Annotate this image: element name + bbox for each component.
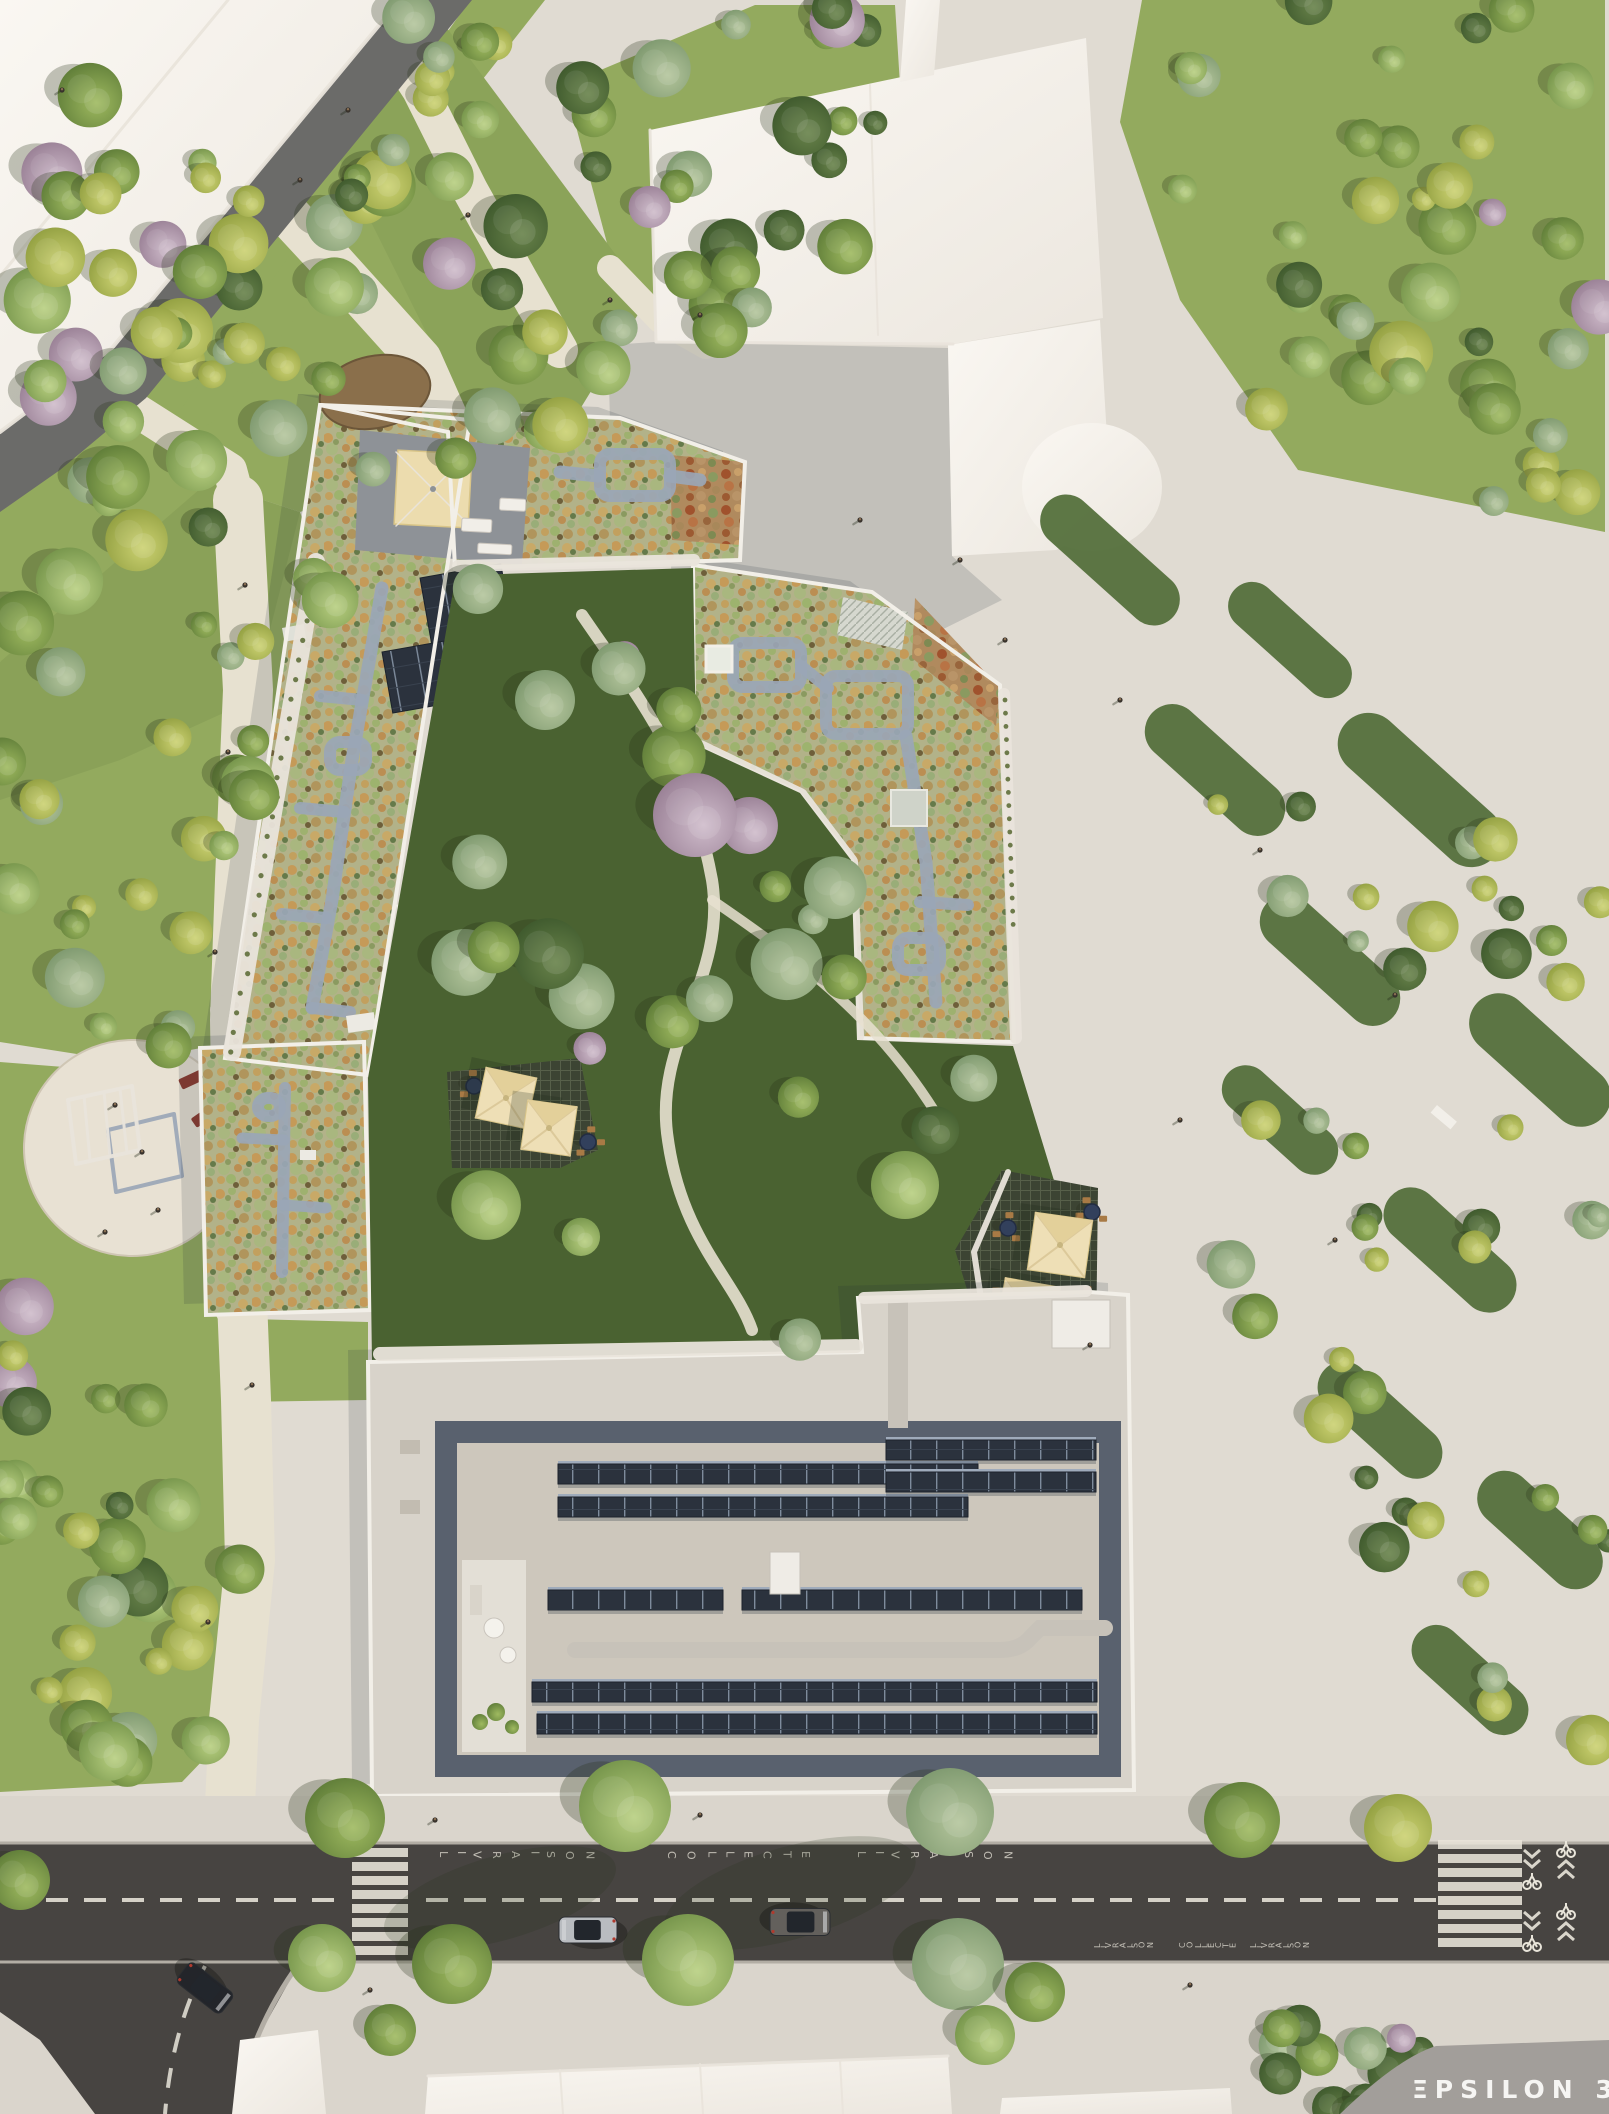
lane-dash <box>654 1898 676 1902</box>
lane-dash <box>996 1898 1018 1902</box>
lane-dash <box>1414 1898 1436 1902</box>
lane-dash <box>46 1898 68 1902</box>
roof-walkway <box>320 696 362 700</box>
crosswalk-stripe <box>1438 1896 1522 1905</box>
lane-dash <box>1186 1898 1208 1902</box>
solar-panel-row <box>886 1440 1096 1460</box>
lane-dash <box>198 1898 220 1902</box>
crosswalk-stripe <box>1438 1840 1522 1849</box>
solar-panel-row <box>537 1714 1097 1734</box>
solar-panel-row <box>532 1682 1097 1702</box>
lane-dash <box>274 1898 296 1902</box>
crosswalk-stripe <box>352 1890 408 1899</box>
roof-box <box>1052 1300 1110 1348</box>
lane-dash <box>920 1898 942 1902</box>
crosswalk-stripe <box>352 1862 408 1871</box>
solar-panel-row <box>886 1472 1096 1492</box>
crosswalk-stripe <box>1438 1868 1522 1877</box>
aerial-render: LIVRAISON COLLECTE LIVRAISON LIVRAISON C… <box>0 0 1609 2114</box>
roof-walkway <box>282 914 326 918</box>
lane-dash <box>958 1898 980 1902</box>
lane-dash <box>1300 1898 1322 1902</box>
south-building-solar-roof <box>348 1280 1134 1796</box>
lane-dash <box>122 1898 144 1902</box>
terrace-furniture <box>461 518 492 533</box>
roof-walkway <box>560 472 598 476</box>
lane-dash <box>1376 1898 1398 1902</box>
lane-dash <box>312 1898 334 1902</box>
solar-panel-row <box>558 1497 968 1517</box>
lane-dash <box>1148 1898 1170 1902</box>
lane-dash <box>1110 1898 1132 1902</box>
red-sedum-patch <box>670 455 745 545</box>
roof-walkway <box>283 1205 326 1208</box>
roof-walkway <box>920 902 968 905</box>
lane-dash <box>84 1898 106 1902</box>
roof-box <box>770 1552 800 1594</box>
terrace-furniture <box>499 498 526 511</box>
roof-walkway <box>300 808 344 812</box>
crosswalk-stripe <box>352 1876 408 1885</box>
crosswalk-stripe <box>1438 1882 1522 1891</box>
crosswalk-stripe <box>1438 1938 1522 1947</box>
crosswalk-stripe <box>1438 1910 1522 1919</box>
lane-dash <box>1262 1898 1284 1902</box>
hvac-duct <box>888 1300 908 1428</box>
lane-dash <box>616 1898 638 1902</box>
crosswalk-stripe <box>1438 1924 1522 1933</box>
lane-dash <box>1338 1898 1360 1902</box>
roof-walkway <box>312 1008 350 1012</box>
lane-dash <box>160 1898 182 1902</box>
watermark-text: ΞPSILON 3D <box>1412 2075 1609 2104</box>
roof-walkway <box>242 1138 284 1140</box>
lane-dash <box>1072 1898 1094 1902</box>
lane-dash <box>1034 1898 1056 1902</box>
solar-panel-row <box>548 1590 723 1610</box>
lane-dash <box>1224 1898 1246 1902</box>
skylight <box>706 646 732 672</box>
crosswalk-stripe <box>1438 1854 1522 1863</box>
lane-dash <box>236 1898 258 1902</box>
road-text-collecte-2: COLLECTE <box>1178 1940 1237 1949</box>
terrace-furniture <box>477 543 511 555</box>
white-building-south <box>232 2030 326 2114</box>
skylight <box>891 790 927 826</box>
